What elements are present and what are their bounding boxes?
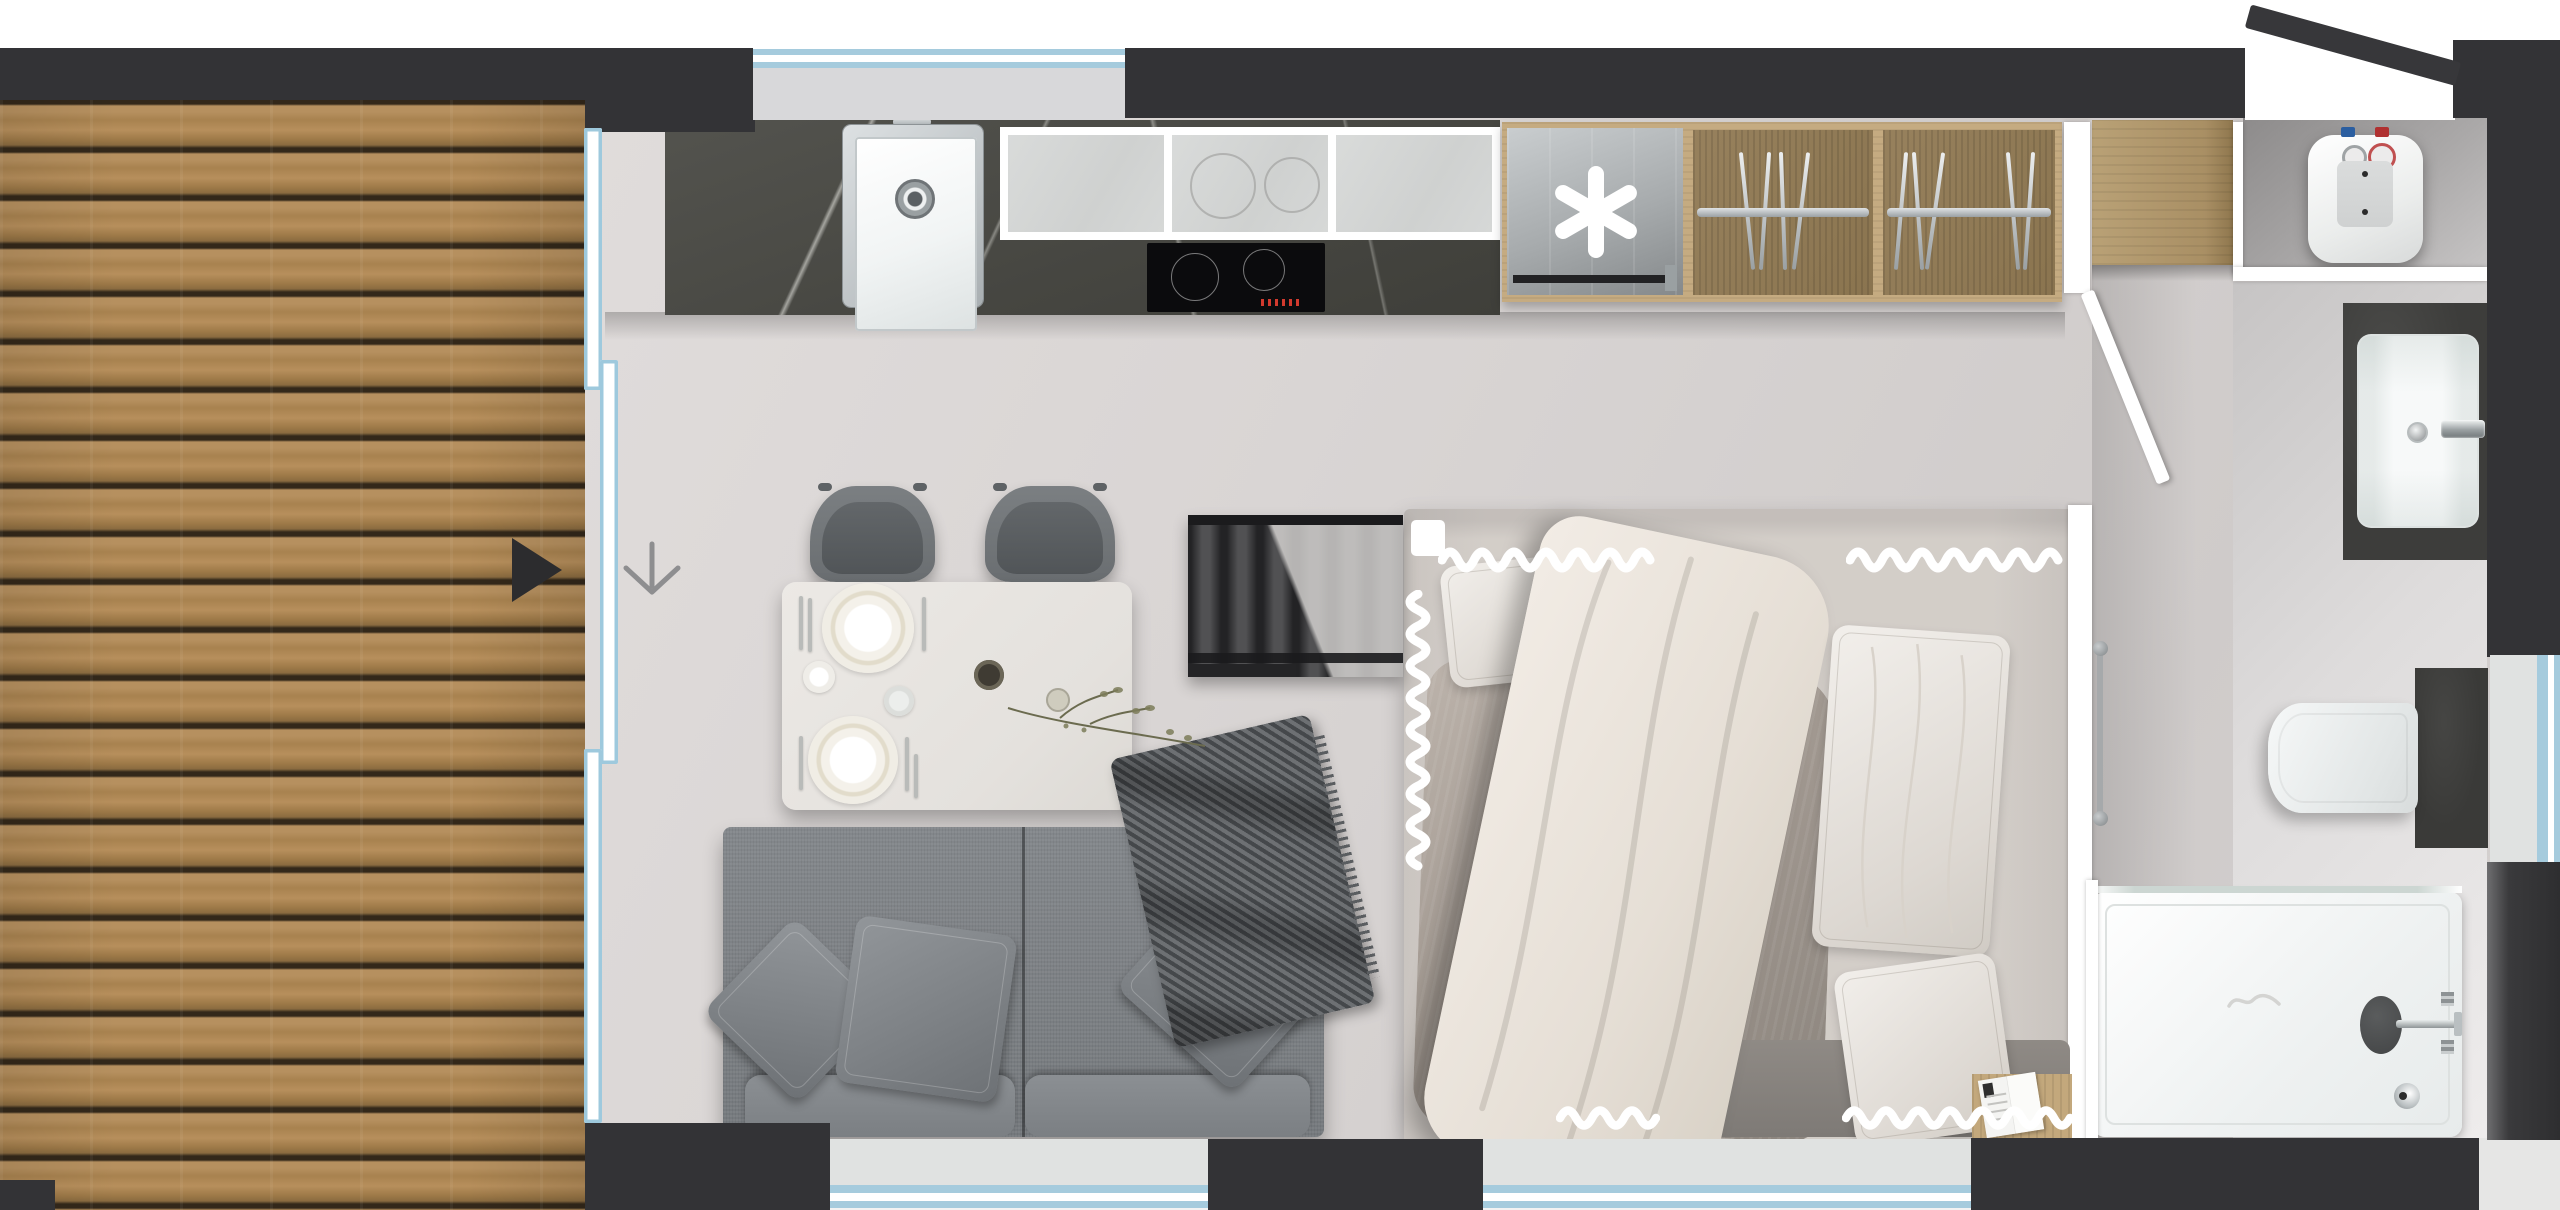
spoon-icon [808,598,812,652]
wall-top-corner-block [585,48,755,132]
shower-arm [2396,1020,2458,1028]
wall-bottom-1 [585,1123,830,1210]
burner-ring-icon [1264,157,1320,213]
wardrobe-end-wall [2064,122,2090,293]
backsplash-panels [1000,127,1500,240]
bedroom-window [1483,1139,1971,1210]
wall-deck-corner [0,1180,55,1210]
heater-indicator [2362,209,2368,215]
dishwasher-handle [1665,265,1677,291]
heater-indicator [2362,171,2368,177]
place-setting-plate [822,583,914,673]
kitchen-sink [843,125,983,307]
bed-corner-cushion [1411,520,1445,556]
radiator [1188,515,1403,677]
bed-pillow-quilted [1811,624,2011,958]
cup [803,661,835,693]
open-book [1978,1072,2044,1138]
rail-knob-icon [2093,811,2108,826]
burner-ring-icon [1190,153,1256,219]
olive-dish [974,660,1004,690]
sink-drain-icon [895,179,935,219]
wardrobe-rod [1697,208,1869,217]
burner-ring-icon [1171,253,1219,301]
bottom-right-floor-strip [2479,1138,2560,1210]
pillow-quilt-stitching [1811,624,2011,958]
wardrobe-rod [1887,208,2051,217]
dishwasher-door-seal [1513,275,1673,283]
counter-floor-shadow [605,312,2065,340]
kitchen-window [753,40,1125,120]
fork-icon [922,597,926,651]
shower-side-wall [2086,880,2098,1142]
cold-pipe-icon [2341,127,2355,137]
six-arm-asterisk-icon [1551,164,1641,260]
backsplash-panel [1336,135,1492,232]
radiator-base [1188,664,1296,677]
spoon-icon [914,754,918,798]
sink-basin [855,137,977,331]
shower-arm-mount [2454,1012,2462,1036]
wall-right-middle [2487,862,2560,1140]
kitchen-tall-cabinet [1502,122,2062,302]
hall-cabinet-shadow [2092,265,2233,281]
backsplash-panel-hob-cover [1172,135,1328,232]
wardrobe-compartment [1693,130,1873,295]
hall-cabinet [2092,120,2233,265]
sliding-door-panel [584,128,602,390]
bedside-tray [1972,1074,2072,1138]
basin-drain-icon [2407,422,2428,443]
wall-bracket-icon [2441,1040,2454,1054]
fork-icon [799,736,803,790]
sliding-door-panel [584,749,602,1123]
washbasin [2357,334,2479,528]
heater-closet-left-wall [2233,122,2243,274]
toilet-cistern-panel [2415,668,2488,848]
dishwasher [1507,128,1683,295]
shower-glass-screen [2090,886,2462,893]
place-setting-plate [808,716,898,804]
living-room-window [830,1139,1208,1210]
burner-ring-icon [1243,249,1285,291]
bowl [884,686,914,716]
washbasin-vanity [2343,303,2487,560]
wardrobe-compartment [1883,130,2055,295]
hallway-floor-shade [2092,180,2242,892]
wall-top-right [1125,48,2245,118]
wall-bracket-icon [2441,992,2454,1006]
knife-icon [905,737,909,791]
wall-top-left [0,48,585,100]
small-jar [1046,688,1070,712]
entry-arrow-icon [512,538,562,602]
sofa-pillow [834,915,1018,1104]
wall-bottom-2 [1208,1139,1483,1210]
terrace-deck [0,100,585,1210]
sofa-seat-cushion [1025,1075,1310,1137]
induction-hob [1147,243,1325,312]
dining-chair [985,486,1115,582]
backsplash-panel [1008,135,1164,232]
basin-faucet [2441,420,2485,438]
shower-control-knob [2394,1083,2420,1109]
hob-display [1261,299,1303,306]
heater-closet-bottom-wall [2233,267,2487,281]
bathroom-window [2490,655,2560,862]
sliding-door-panel [600,360,618,764]
wall-right-upper [2487,40,2560,657]
rail-knob-icon [2093,641,2108,656]
wall-bottom-3 [1971,1138,2479,1210]
shower-tray [2093,892,2462,1137]
water-heater [2308,135,2423,263]
fork-icon [799,596,803,650]
floor-plan-canvas: { "scene": { "type": "apartment-floor-pl… [0,0,2560,1210]
wall-hung-toilet [2268,703,2418,813]
dining-chair [810,486,935,582]
hot-pipe-icon [2375,127,2389,137]
towel-rail [2097,648,2103,818]
